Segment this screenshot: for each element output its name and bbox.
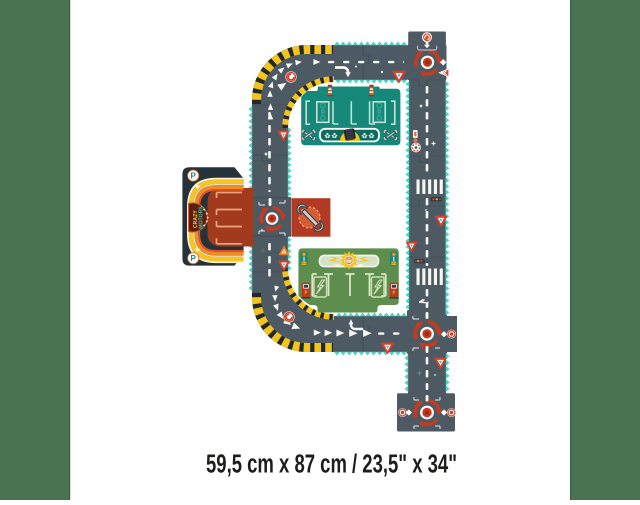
svg-text:P: P [191, 172, 197, 181]
svg-text:P: P [191, 254, 197, 263]
svg-text:59,5 cm x 87 cm / 23,5" x 34": 59,5 cm x 87 cm / 23,5" x 34" [206, 451, 457, 479]
